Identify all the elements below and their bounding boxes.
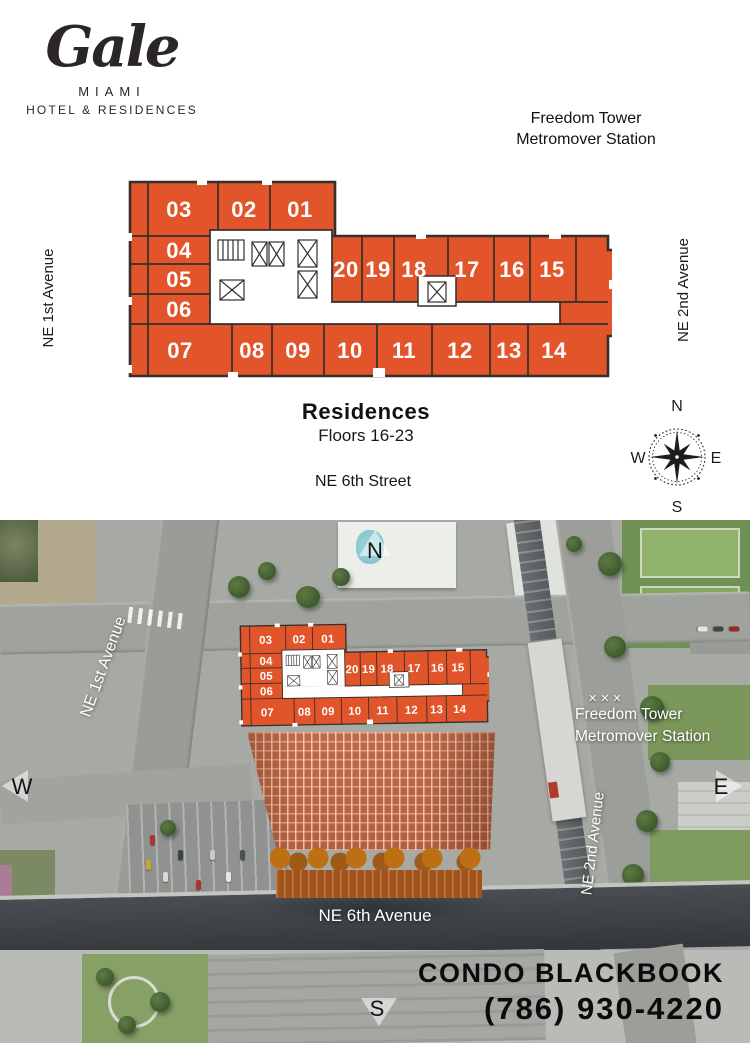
keyplate-floorplan: 03 02 01 04 05 06 20 19 18 17 16 15 07 0… bbox=[122, 176, 612, 388]
tree-corner bbox=[0, 520, 38, 582]
metromover-station-label: Freedom Tower Metromover Station bbox=[430, 108, 742, 150]
unit-number: 15 bbox=[539, 257, 564, 282]
west-letter: W bbox=[0, 774, 46, 800]
car bbox=[210, 850, 215, 860]
unit-number: 08 bbox=[239, 338, 264, 363]
car bbox=[226, 872, 231, 882]
tree bbox=[258, 562, 276, 580]
compass-north-label: N bbox=[671, 398, 683, 415]
street-label-ne-1st-avenue: NE 1st Avenue bbox=[40, 213, 60, 383]
tree bbox=[636, 810, 658, 832]
aerial-station-line1: Freedom Tower bbox=[575, 704, 710, 726]
unit-number: 14 bbox=[541, 338, 567, 363]
floors-subtitle: Floors 16-23 bbox=[166, 426, 566, 446]
roof-keyplate-svg bbox=[236, 619, 490, 732]
aerial-compass-east: E bbox=[700, 764, 746, 810]
car bbox=[714, 627, 724, 632]
tree bbox=[160, 820, 176, 836]
unit-number: 06 bbox=[166, 297, 191, 322]
car bbox=[146, 860, 151, 870]
unit-number: 17 bbox=[454, 257, 479, 282]
tree bbox=[332, 568, 350, 586]
car bbox=[196, 880, 201, 890]
unit-number: 19 bbox=[365, 257, 390, 282]
logo-city-text: MIAMI bbox=[26, 84, 198, 99]
street-label-ne-2nd-avenue: NE 2nd Avenue bbox=[675, 205, 695, 375]
tree bbox=[118, 1016, 136, 1034]
station-line1: Freedom Tower bbox=[430, 108, 742, 129]
logo-script-text: Gale bbox=[26, 12, 198, 82]
unit-number: 12 bbox=[447, 338, 472, 363]
unit-number: 02 bbox=[231, 197, 256, 222]
car bbox=[163, 872, 168, 882]
advertiser-branding: CONDO BLACKBOOK (786) 930-4220 bbox=[418, 958, 724, 1027]
car bbox=[240, 850, 245, 860]
tree bbox=[228, 576, 250, 598]
unit-number: 05 bbox=[166, 267, 191, 292]
unit-number: 04 bbox=[166, 238, 192, 263]
unit-number: 11 bbox=[392, 338, 416, 363]
unit-number: 03 bbox=[166, 197, 191, 222]
tree bbox=[604, 636, 626, 658]
unit-number: 09 bbox=[285, 338, 310, 363]
sports-court-1 bbox=[640, 528, 740, 578]
unit-number: 16 bbox=[499, 257, 524, 282]
car bbox=[698, 627, 708, 632]
east-letter: E bbox=[696, 774, 746, 800]
north-letter: N bbox=[352, 538, 398, 564]
tree bbox=[650, 752, 670, 772]
tower-building bbox=[247, 732, 495, 850]
unit-number: 01 bbox=[287, 197, 312, 222]
keyplate-section: Gale MIAMI HOTEL & RESIDENCES Freedom To… bbox=[0, 0, 750, 520]
compass-rose-icon: N S W E bbox=[630, 397, 724, 515]
car bbox=[150, 835, 155, 845]
tree bbox=[150, 992, 170, 1012]
unit-number: 13 bbox=[496, 338, 521, 363]
aerial-station-line2: Metromover Station bbox=[575, 726, 710, 748]
tree bbox=[96, 968, 114, 986]
car bbox=[178, 850, 183, 860]
street-label-ne-6th-street: NE 6th Street bbox=[163, 473, 563, 491]
south-letter: S bbox=[354, 996, 400, 1022]
compass-east-label: E bbox=[711, 450, 722, 467]
page-title: Residences bbox=[166, 399, 566, 425]
tower-podium bbox=[276, 870, 482, 898]
unit-number: 10 bbox=[337, 338, 362, 363]
unit-number: 07 bbox=[167, 338, 192, 363]
aerial-compass-north: N bbox=[352, 528, 398, 574]
compass-west-label: W bbox=[630, 450, 646, 467]
tree bbox=[598, 552, 622, 576]
tree bbox=[296, 586, 320, 608]
aerial-map-section: ✕✕✕ Freedom Tower Metromover Station NE … bbox=[0, 520, 750, 1043]
tree bbox=[566, 536, 582, 552]
station-line2: Metromover Station bbox=[430, 129, 742, 150]
aerial-compass-south: S bbox=[354, 990, 400, 1036]
unit-number: 18 bbox=[401, 257, 426, 282]
advertiser-phone: (786) 930-4220 bbox=[418, 991, 724, 1027]
flyer-page: Gale MIAMI HOTEL & RESIDENCES Freedom To… bbox=[0, 0, 750, 1043]
aerial-compass-west: W bbox=[0, 764, 46, 810]
aerial-street-ne-6th-avenue: NE 6th Avenue bbox=[280, 906, 470, 926]
roof-keyplate-overlay bbox=[236, 619, 490, 732]
aerial-station-label: Freedom Tower Metromover Station bbox=[575, 704, 710, 748]
keyplate-graphic: 03 02 01 04 05 06 20 19 18 17 16 15 07 0… bbox=[125, 178, 612, 379]
brand-logo: Gale MIAMI HOTEL & RESIDENCES bbox=[26, 12, 198, 117]
advertiser-name: CONDO BLACKBOOK bbox=[418, 958, 724, 989]
unit-number: 20 bbox=[333, 257, 358, 282]
compass-south-label: S bbox=[672, 499, 683, 515]
logo-tagline-text: HOTEL & RESIDENCES bbox=[26, 103, 198, 117]
car bbox=[730, 627, 740, 632]
